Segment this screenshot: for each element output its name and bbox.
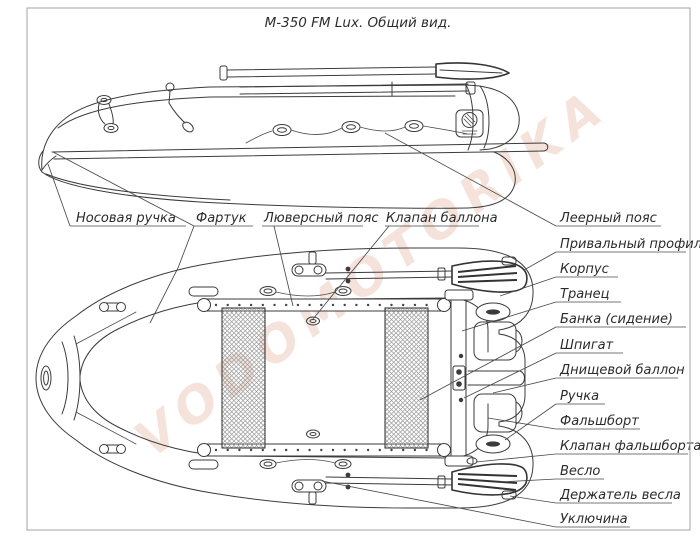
callout-transom-label: Транец (560, 287, 610, 302)
side-view-oars (220, 63, 509, 96)
callout-oar: Весло (500, 464, 604, 482)
top-view-keel-tube-end (468, 371, 525, 385)
side-view-bow-handle (97, 83, 195, 134)
callout-bulwark-label: Фальшборт (560, 414, 639, 429)
callout-oar-holder-label: Держатель весла (559, 488, 681, 503)
top-view-transom (445, 290, 473, 466)
callout-bow-handle-label: Носовая ручка (76, 211, 176, 226)
callout-scupper-label: Шпигат (560, 338, 614, 353)
side-view-leer-rope (246, 121, 468, 144)
callout-grommet-belt-label: Люверсный пояс (263, 211, 379, 226)
callout-bow-handle: Носовая ручка (48, 164, 186, 226)
callout-tube-valve-label: Клапан баллона (386, 211, 498, 226)
callout-apron: Фартук (53, 152, 253, 323)
top-view-bow-cleats (100, 303, 126, 454)
callout-hull-label: Корпус (560, 262, 609, 277)
callout-rub-profile: Привальный профиль (524, 237, 700, 270)
callout-bulwark-valve-label: Клапан фальшборта (560, 439, 700, 454)
callout-oar-label: Весло (560, 464, 600, 479)
callout-handle-label: Ручка (560, 389, 599, 404)
top-view-drawing (36, 248, 533, 508)
callout-bow-handle-leader (48, 164, 70, 226)
callout-seat-label: Банка (сидение) (560, 312, 673, 327)
boat-diagram-canvas: VODOMOTORIKA М-350 FM Lux. Общий вид. (0, 0, 700, 544)
callout-oarlock-label: Уключина (560, 512, 628, 527)
boat-diagram-page: VODOMOTORIKA М-350 FM Lux. Общий вид. (0, 0, 700, 544)
page-title: М-350 FM Lux. Общий вид. (265, 15, 452, 31)
callout-bottom-tube-label: Днищевой баллон (559, 363, 685, 378)
manufacturer-logo-patch (456, 110, 483, 137)
top-view-hull (36, 248, 533, 508)
callout-rail-rope-label: Леерный пояс (559, 211, 657, 226)
callout-apron-label: Фартук (196, 211, 247, 226)
callout-rub-profile-label: Привальный профиль (560, 237, 700, 252)
callout-oar-holder: Держатель весла (510, 488, 681, 503)
callout-bulwark: Фальшборт (488, 414, 640, 429)
